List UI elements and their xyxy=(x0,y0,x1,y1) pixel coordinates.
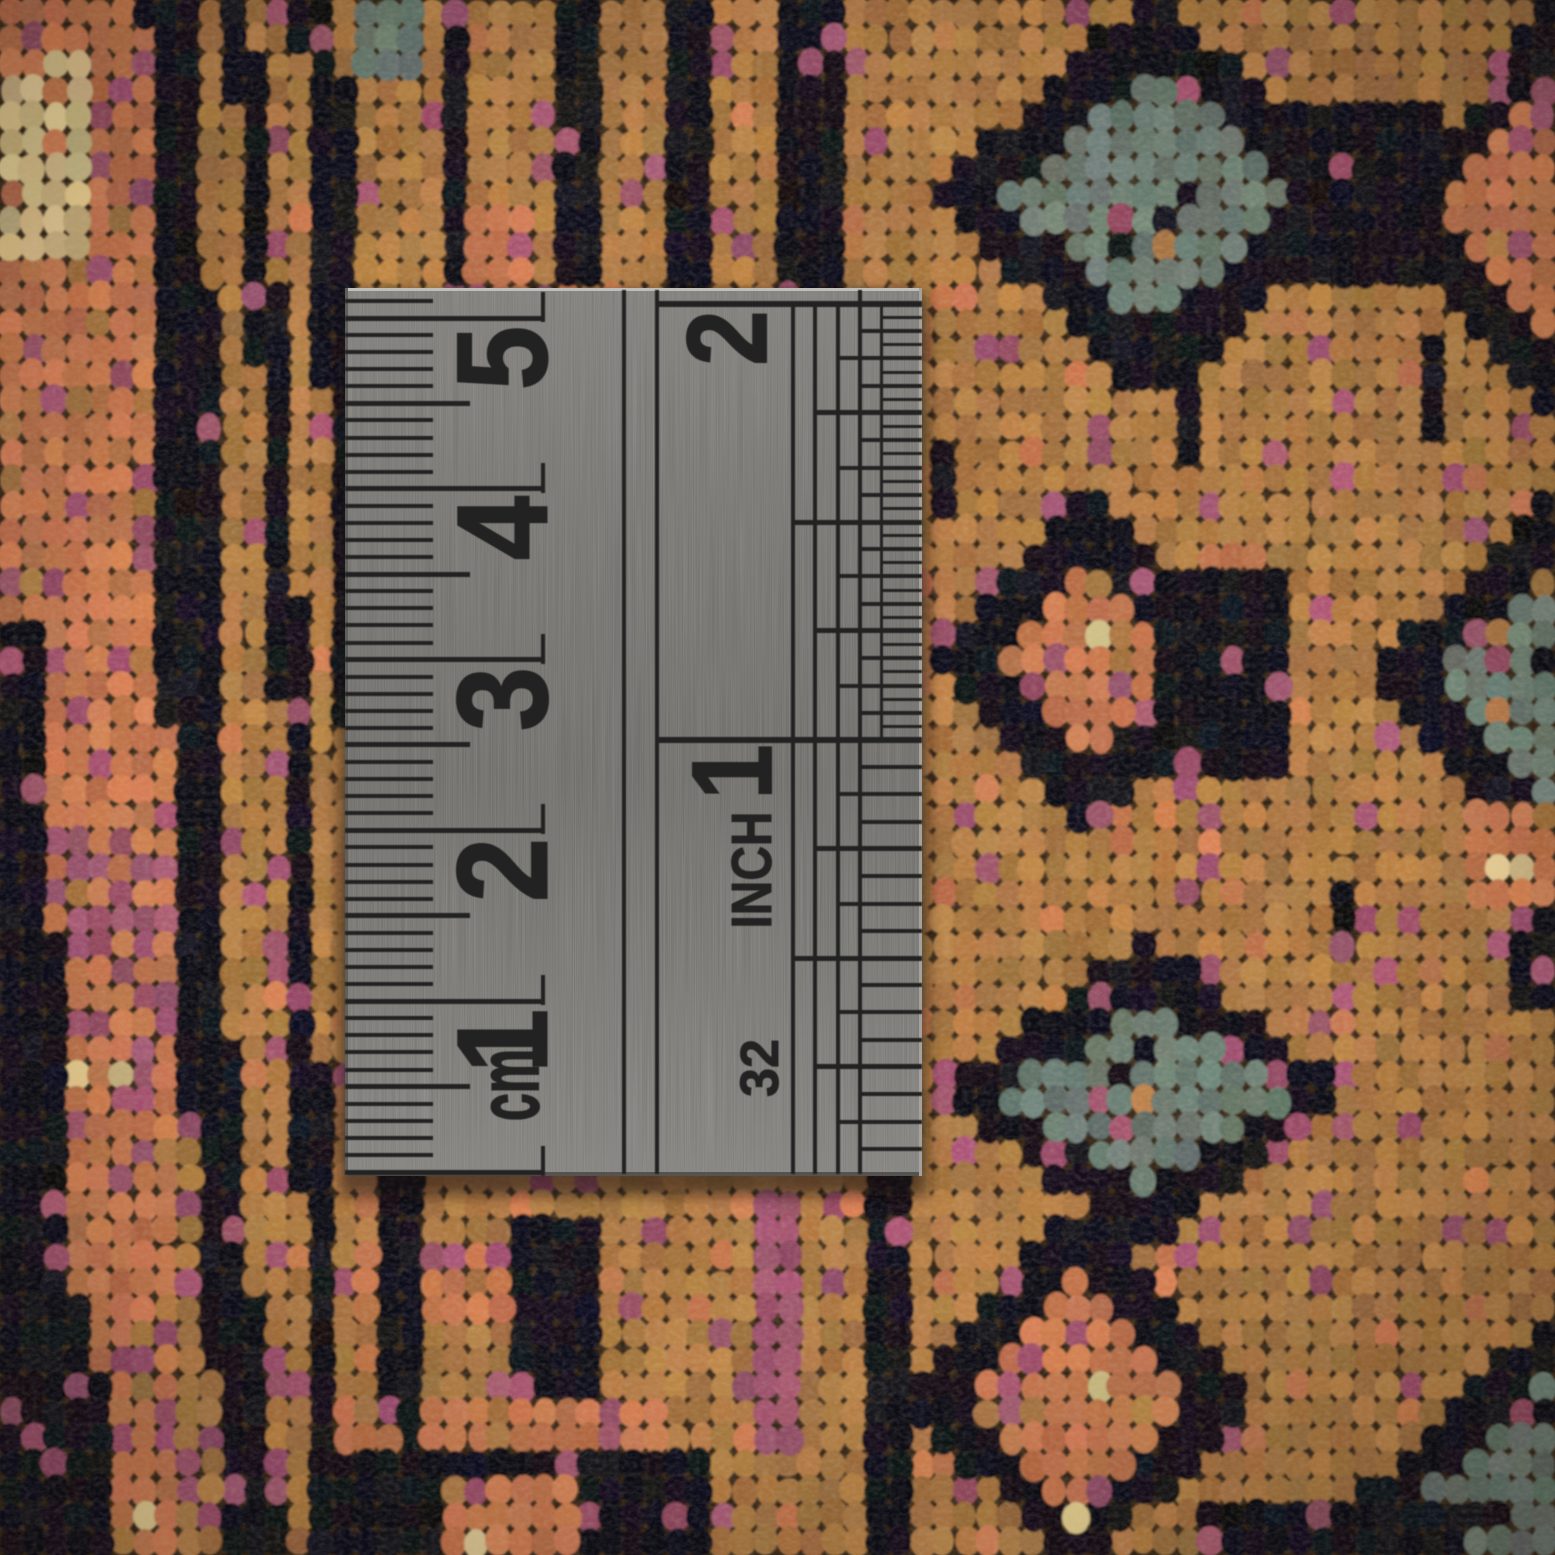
svg-text:32: 32 xyxy=(730,1039,790,1097)
svg-text:3: 3 xyxy=(432,667,575,731)
svg-text:5: 5 xyxy=(432,326,575,390)
svg-text:2: 2 xyxy=(664,311,790,366)
svg-text:1: 1 xyxy=(669,745,795,800)
svg-text:2: 2 xyxy=(432,838,575,902)
svg-text:INCH: INCH xyxy=(720,812,784,929)
svg-text:4: 4 xyxy=(432,496,575,560)
svg-text:cm: cm xyxy=(461,1049,557,1121)
